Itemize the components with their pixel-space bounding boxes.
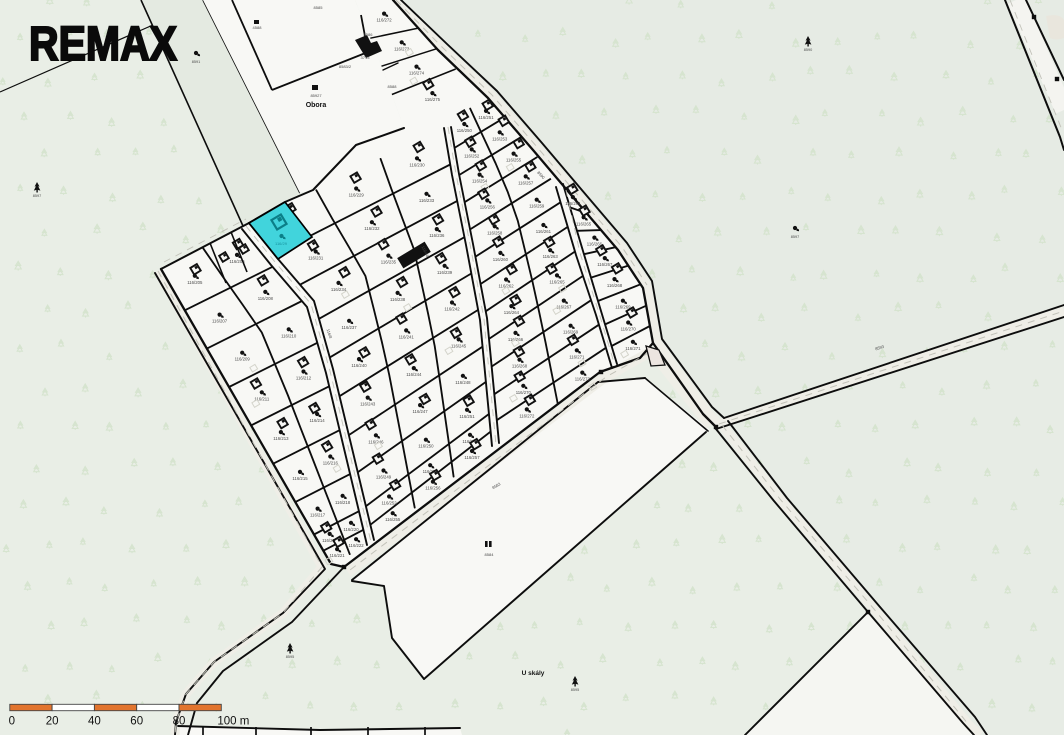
svg-text:116/243: 116/243 bbox=[360, 402, 376, 407]
svg-text:116/221: 116/221 bbox=[329, 553, 345, 558]
svg-text:8590: 8590 bbox=[804, 48, 812, 52]
svg-text:116/261: 116/261 bbox=[536, 229, 552, 234]
svg-text:116/236: 116/236 bbox=[429, 233, 445, 238]
svg-text:116/230: 116/230 bbox=[409, 162, 425, 167]
svg-text:116/217: 116/217 bbox=[310, 513, 326, 518]
svg-text:116/273: 116/273 bbox=[575, 377, 591, 382]
svg-text:116/272: 116/272 bbox=[519, 413, 535, 418]
svg-text:116/231: 116/231 bbox=[308, 256, 324, 261]
svg-text:116/265: 116/265 bbox=[549, 279, 565, 284]
svg-text:REMAX: REMAX bbox=[29, 18, 177, 71]
svg-text:116/214: 116/214 bbox=[309, 418, 325, 423]
svg-text:116/260: 116/260 bbox=[493, 257, 509, 262]
svg-text:116/253: 116/253 bbox=[492, 136, 508, 141]
svg-text:116/249: 116/249 bbox=[376, 475, 392, 480]
svg-text:116/211: 116/211 bbox=[254, 396, 270, 401]
svg-text:116/256: 116/256 bbox=[480, 204, 496, 209]
svg-text:116/220: 116/220 bbox=[343, 527, 359, 532]
svg-text:20: 20 bbox=[46, 716, 59, 728]
svg-text:116/251: 116/251 bbox=[459, 414, 475, 419]
svg-text:8583/2: 8583/2 bbox=[339, 64, 352, 69]
svg-text:116/250: 116/250 bbox=[418, 444, 434, 449]
svg-text:116/269: 116/269 bbox=[563, 330, 579, 335]
svg-text:116/237: 116/237 bbox=[341, 325, 357, 330]
svg-text:Obora: Obora bbox=[306, 102, 327, 109]
svg-text:0: 0 bbox=[9, 716, 15, 728]
svg-text:116/256: 116/256 bbox=[425, 486, 441, 491]
svg-text:116/241: 116/241 bbox=[399, 334, 415, 339]
svg-text:116/210: 116/210 bbox=[281, 333, 297, 338]
svg-text:116/218: 116/218 bbox=[335, 500, 351, 505]
svg-text:116/264: 116/264 bbox=[504, 310, 520, 315]
svg-text:116/222: 116/222 bbox=[348, 543, 364, 548]
svg-text:116/274: 116/274 bbox=[409, 71, 425, 76]
svg-text:116/257: 116/257 bbox=[464, 455, 480, 460]
svg-text:8585: 8585 bbox=[314, 5, 324, 10]
svg-text:116/263: 116/263 bbox=[543, 254, 559, 259]
svg-text:8595: 8595 bbox=[571, 688, 579, 692]
svg-text:116/250: 116/250 bbox=[457, 128, 473, 133]
svg-text:116/265: 116/265 bbox=[576, 221, 592, 226]
svg-text:116/205: 116/205 bbox=[187, 280, 203, 285]
svg-text:116/242: 116/242 bbox=[444, 307, 460, 312]
svg-text:116/268: 116/268 bbox=[607, 283, 623, 288]
svg-text:60: 60 bbox=[130, 716, 143, 728]
svg-text:116/257: 116/257 bbox=[518, 180, 534, 185]
svg-text:4588: 4588 bbox=[253, 25, 263, 30]
svg-text:U skály: U skály bbox=[522, 670, 545, 677]
svg-text:116/258: 116/258 bbox=[487, 230, 503, 235]
svg-text:116/216: 116/216 bbox=[323, 461, 339, 466]
svg-text:116/254: 116/254 bbox=[472, 179, 488, 184]
svg-text:116/229: 116/229 bbox=[349, 193, 365, 198]
svg-text:116/232: 116/232 bbox=[364, 226, 380, 231]
svg-text:8588: 8588 bbox=[388, 84, 398, 89]
svg-text:116/247: 116/247 bbox=[412, 409, 428, 414]
svg-text:116/252: 116/252 bbox=[381, 501, 397, 506]
svg-text:8595: 8595 bbox=[286, 655, 294, 659]
svg-text:116/271: 116/271 bbox=[625, 346, 641, 351]
svg-text:116/252: 116/252 bbox=[464, 153, 480, 158]
svg-text:116/244: 116/244 bbox=[406, 372, 422, 377]
svg-text:116/239: 116/239 bbox=[437, 270, 453, 275]
svg-text:116/240: 116/240 bbox=[351, 363, 367, 368]
svg-text:116/271: 116/271 bbox=[569, 354, 585, 359]
svg-text:116/207: 116/207 bbox=[212, 319, 228, 324]
svg-text:116/255: 116/255 bbox=[506, 158, 522, 163]
svg-text:116/248: 116/248 bbox=[455, 380, 471, 385]
svg-text:116/255: 116/255 bbox=[385, 517, 401, 522]
svg-text:116/270: 116/270 bbox=[621, 327, 637, 332]
svg-text:40: 40 bbox=[88, 716, 101, 728]
svg-text:116/272: 116/272 bbox=[376, 18, 392, 23]
svg-text:8591: 8591 bbox=[192, 60, 200, 64]
svg-text:100 m: 100 m bbox=[217, 716, 249, 728]
svg-text:116/215: 116/215 bbox=[292, 476, 308, 481]
svg-text:116/270: 116/270 bbox=[516, 390, 532, 395]
svg-text:116/29: 116/29 bbox=[275, 241, 288, 246]
svg-text:116/212: 116/212 bbox=[296, 376, 312, 381]
svg-text:8584: 8584 bbox=[485, 552, 495, 557]
svg-text:116/233: 116/233 bbox=[419, 198, 435, 203]
svg-text:116/251: 116/251 bbox=[478, 115, 494, 120]
svg-text:116/213: 116/213 bbox=[273, 436, 289, 441]
svg-text:8597: 8597 bbox=[33, 194, 41, 198]
svg-text:85927: 85927 bbox=[310, 93, 322, 98]
svg-text:116/245: 116/245 bbox=[451, 343, 467, 348]
svg-text:116/268: 116/268 bbox=[512, 364, 528, 369]
svg-text:8586: 8586 bbox=[364, 32, 374, 37]
svg-text:116/234: 116/234 bbox=[331, 287, 347, 292]
svg-text:3713: 3713 bbox=[361, 55, 371, 60]
svg-text:116/267: 116/267 bbox=[597, 262, 613, 267]
svg-text:116/259: 116/259 bbox=[529, 204, 545, 209]
svg-text:116/275: 116/275 bbox=[425, 97, 441, 102]
svg-text:116/238: 116/238 bbox=[390, 297, 406, 302]
svg-text:80: 80 bbox=[173, 716, 186, 728]
svg-text:116/235: 116/235 bbox=[381, 260, 397, 265]
svg-text:116/208: 116/208 bbox=[258, 296, 274, 301]
svg-text:116/209: 116/209 bbox=[235, 357, 251, 362]
svg-text:8597: 8597 bbox=[791, 235, 799, 239]
